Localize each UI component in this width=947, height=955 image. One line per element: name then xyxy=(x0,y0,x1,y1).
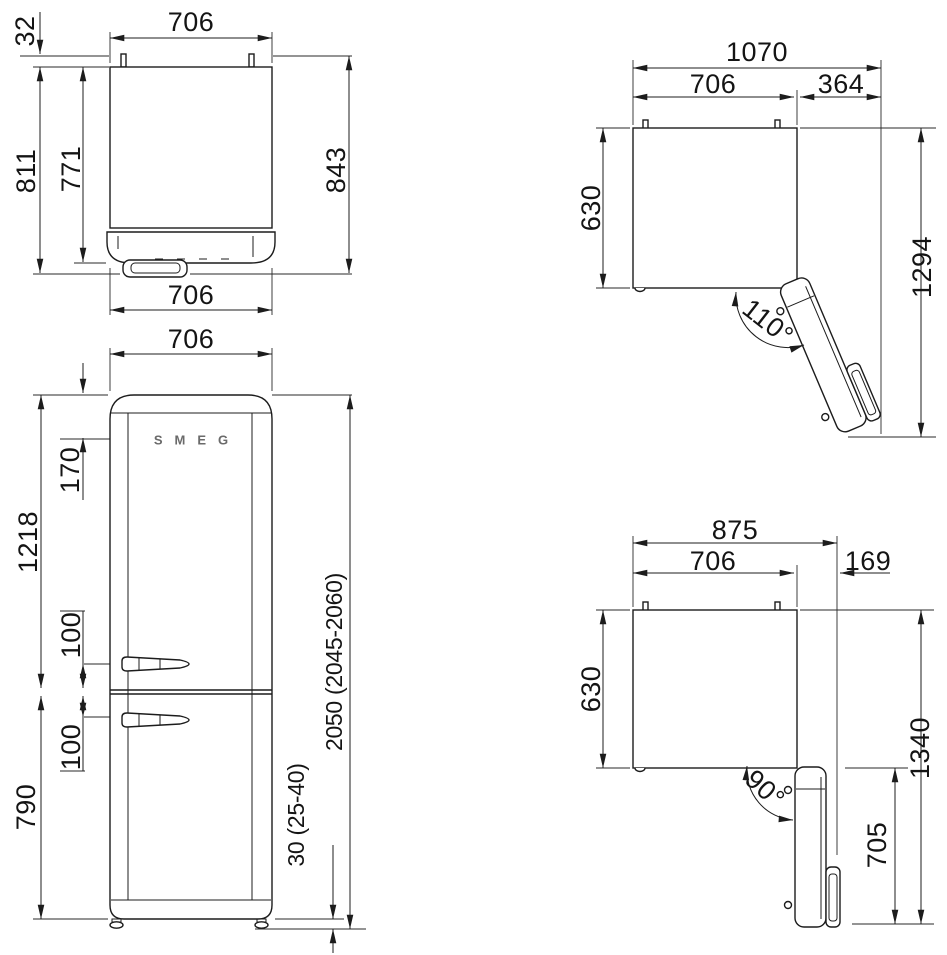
cabinet-body-top xyxy=(110,67,272,228)
dim-label-depth-total: 1294 xyxy=(907,236,937,298)
dim-label-upper-section: 1218 xyxy=(13,511,43,573)
dim-label-width-total: 1070 xyxy=(726,37,788,67)
dim-label-width-total: 875 xyxy=(712,515,759,545)
cabinet-body-top xyxy=(633,610,797,768)
dim-label-lower-section: 790 xyxy=(11,784,41,831)
foot-right xyxy=(255,922,268,928)
dim-label-width: 706 xyxy=(168,324,215,354)
top-view-open-90: 875 706 169 630 1340 705 90° xyxy=(576,515,935,927)
brand-logo: SMEG xyxy=(154,433,240,448)
dim-label-depth-body: 630 xyxy=(576,666,606,713)
door-handle xyxy=(826,867,840,927)
dim-label-width-body: 706 xyxy=(690,546,737,576)
foot-left xyxy=(110,922,123,928)
dim-label-depth-body: 630 xyxy=(576,185,606,232)
front-view: SMEG 706 170 1218 100 100 790 2050 (2045… xyxy=(11,324,366,953)
dim-label-depth-to-door-front: 771 xyxy=(56,146,86,193)
dim-label-upper-handle-offset: 100 xyxy=(56,612,86,659)
door-hinge-dot xyxy=(785,902,792,909)
dimension-diagram-page: 706 32 811 771 843 706 xyxy=(0,0,947,955)
hinge-pin-right xyxy=(249,54,254,67)
dim-label-width-body: 706 xyxy=(690,69,737,99)
open-door-90 xyxy=(785,767,841,927)
dim-label-door-clearance: 364 xyxy=(818,69,865,99)
dim-label-handle-clearance: 169 xyxy=(845,546,892,576)
dim-label-total-height: 2050 (2045-2060) xyxy=(321,573,347,751)
dim-label-logo-from-top: 170 xyxy=(55,447,85,494)
door-hinge-dot xyxy=(821,412,830,421)
dim-label-depth-with-handle: 811 xyxy=(11,149,41,194)
cabinet-body-top xyxy=(633,128,797,288)
top-view-open-110: 1070 706 364 630 1294 110° xyxy=(576,37,937,439)
foot-bump xyxy=(635,288,645,292)
dim-label-width-bottom: 706 xyxy=(168,280,215,310)
door-slab xyxy=(778,275,869,434)
dim-label-rear-clearance: 32 xyxy=(10,15,40,46)
open-door-110 xyxy=(768,270,882,439)
dim-label-width-top: 706 xyxy=(168,7,215,37)
feet xyxy=(110,919,268,928)
door-top-profile xyxy=(107,232,275,263)
dim-label-door-projection: 705 xyxy=(862,822,892,869)
top-view-closed: 706 32 811 771 843 706 xyxy=(10,7,352,315)
dim-label-feet-height: 30 (25-40) xyxy=(283,763,309,866)
dimension-diagram: 706 32 811 771 843 706 xyxy=(0,0,947,955)
foot-bump xyxy=(635,768,645,772)
hinge-pin-left xyxy=(121,54,126,67)
dim-label-lower-handle-offset: 100 xyxy=(56,724,86,771)
dim-label-depth-total: 1340 xyxy=(905,717,935,779)
dim-label-depth-total: 843 xyxy=(321,147,351,194)
